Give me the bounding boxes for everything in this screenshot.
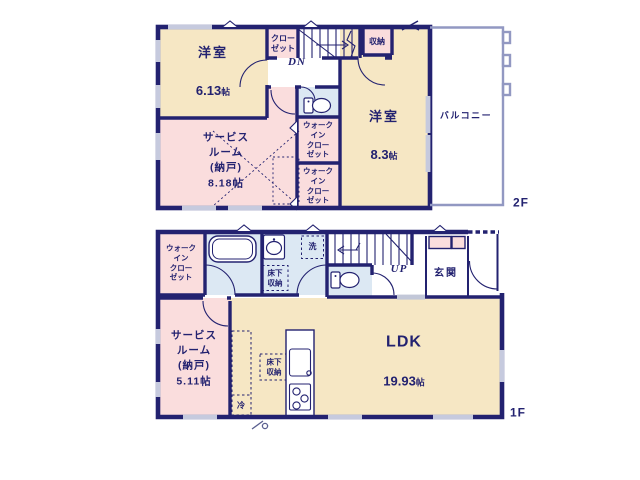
kitchen-counter [286,330,314,417]
stairs-down-label: DN [288,56,306,70]
fridge-label: 冷 [237,401,245,411]
room-name: 洋室 [369,109,399,125]
laundry-label: 洗 [309,242,317,252]
balcony-label: バルコニー [440,110,492,121]
room-label-service-1f: サービス ルーム (納戸) 5.11帖 [171,329,217,390]
room-label-bedroom2-2f: 洋室 8.3帖 [369,89,399,184]
room-label-service-2f: サービス ルーム (納戸) 8.18帖 [203,131,249,192]
room-label-closet-2f: クロー ゼット [271,34,295,54]
toilet-icon-1f [331,272,359,288]
genkan-step [397,295,425,300]
room-label-wic-a-2f: ウォーク イン クロー ゼット [303,121,333,160]
room-label-genkan: 玄関 [434,268,458,281]
shoe-cabinet [429,237,465,249]
room-label-bedroom1-2f: 洋室 6.13帖 [196,25,230,120]
underfloor-storage-label-wash: 床下 収納 [268,268,283,288]
floorplan-drawing [0,0,640,480]
room-name: LDK [383,332,424,352]
underfloor-storage-label-ldk: 床下 収納 [267,357,282,377]
toilet-icon-2f [304,98,331,113]
room-label-wic-1f: ウォーク イン クロー ゼット [166,244,196,283]
room-name: 洋室 [196,45,230,61]
room-label-storage-2f: 収納 [369,37,385,47]
floor2-tag: 2F [513,196,529,211]
stairs-1f [335,234,412,265]
floorplan-canvas: 洋室 6.13帖 クロー ゼット DN 収納 洋室 8.3帖 サービス ルーム … [0,0,640,480]
stairs-up-label: UP [391,263,408,277]
washbasin-icon [264,235,285,259]
footer: N (株)エステート白馬 上尾駅前店 [0,414,640,474]
room-label-wic-b-2f: ウォーク イン クロー ゼット [303,167,333,206]
floor1-plan [156,225,505,429]
room-label-ldk: LDK 19.93帖 [383,312,424,409]
bathtub-icon [209,236,256,262]
